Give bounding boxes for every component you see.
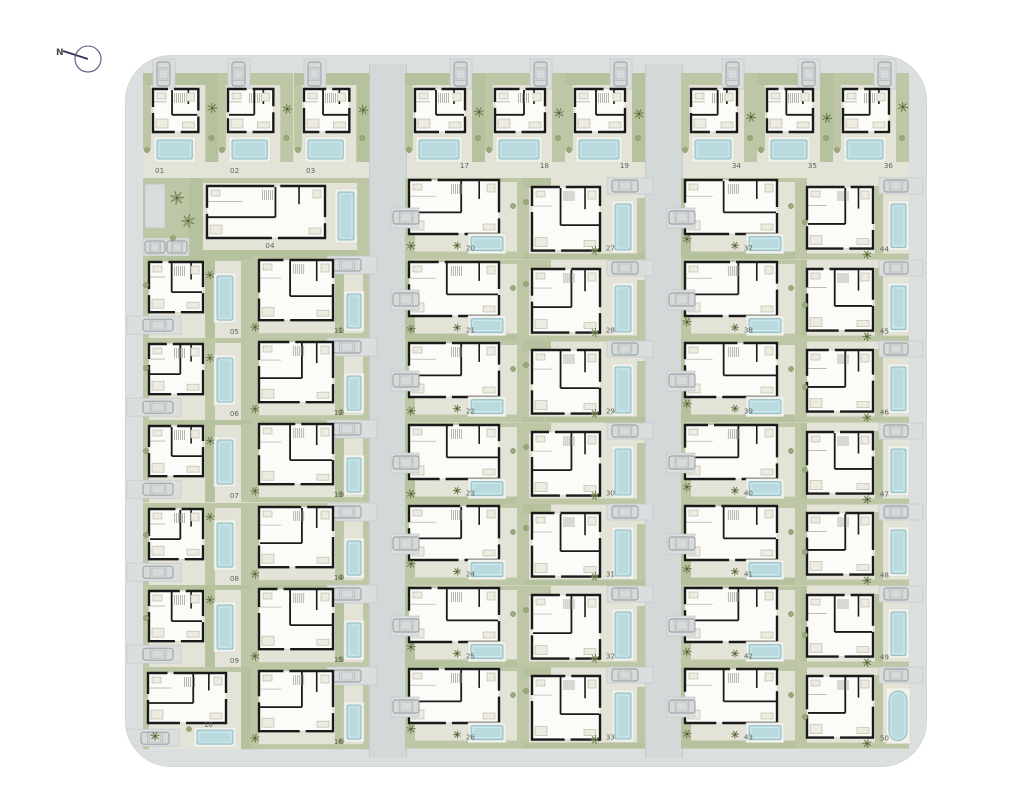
car-icon bbox=[612, 425, 638, 437]
garden-area bbox=[681, 73, 757, 85]
floor-plan bbox=[147, 672, 227, 724]
garden-area bbox=[357, 178, 369, 256]
garden-area bbox=[143, 338, 251, 343]
floor-plan bbox=[806, 594, 874, 658]
plot-number: 37 bbox=[744, 244, 753, 253]
plot-number: 08 bbox=[230, 574, 240, 583]
plot-36: 36 bbox=[833, 73, 909, 178]
tree-icon bbox=[731, 487, 739, 495]
site-plan-canvas: N 01020304050607080910111213141516171819… bbox=[0, 0, 1024, 800]
plot-02: 02 bbox=[218, 73, 293, 178]
plot-31: 31 bbox=[523, 504, 645, 586]
pool bbox=[844, 137, 886, 162]
plot-48: 48 bbox=[801, 504, 909, 586]
plot-number: 31 bbox=[606, 570, 615, 579]
garden-area bbox=[241, 507, 251, 585]
pool bbox=[335, 189, 357, 243]
floor-plan bbox=[531, 512, 601, 578]
pool bbox=[194, 727, 236, 747]
pool bbox=[612, 609, 634, 661]
north-label: N bbox=[56, 48, 64, 58]
floor-plan bbox=[258, 423, 334, 485]
garden-area bbox=[356, 85, 369, 162]
floor-plan bbox=[148, 508, 204, 560]
pool bbox=[416, 137, 462, 162]
car-icon bbox=[802, 62, 815, 86]
car-icon bbox=[726, 62, 739, 86]
floor-plan bbox=[684, 668, 778, 724]
floor-plan bbox=[806, 675, 874, 739]
plot-18: 18 bbox=[485, 73, 565, 178]
plot-number: 48 bbox=[880, 571, 890, 580]
pool bbox=[612, 283, 634, 335]
car-icon bbox=[878, 62, 891, 86]
car-icon bbox=[884, 262, 908, 274]
car-icon bbox=[669, 456, 695, 469]
bush-icon bbox=[566, 147, 571, 152]
floor-plan bbox=[806, 268, 874, 332]
bush-icon bbox=[788, 611, 793, 616]
bush-icon bbox=[523, 363, 528, 368]
garden-area bbox=[637, 361, 645, 417]
plot-number: 39 bbox=[744, 407, 754, 416]
plot-33: 33 bbox=[523, 667, 645, 749]
car-icon bbox=[612, 669, 638, 681]
bush-icon bbox=[788, 203, 793, 208]
garden-area bbox=[205, 85, 218, 162]
floor-plan bbox=[574, 88, 626, 133]
plot-08: 08 bbox=[143, 503, 251, 585]
garden-area bbox=[565, 85, 573, 150]
pool bbox=[496, 137, 542, 162]
plot-number: 41 bbox=[744, 570, 753, 579]
car-icon bbox=[612, 588, 638, 600]
floor-plan bbox=[842, 88, 890, 133]
bush-icon bbox=[802, 219, 807, 224]
pool bbox=[344, 455, 364, 495]
car-icon bbox=[143, 319, 173, 331]
garden-area bbox=[637, 687, 645, 743]
floor-plan bbox=[806, 349, 874, 413]
plot-number: 34 bbox=[732, 161, 742, 170]
plot-40: 40 bbox=[681, 423, 801, 505]
plot-27: 27 bbox=[523, 178, 645, 260]
plot-number: 17 bbox=[460, 161, 469, 170]
garden-area bbox=[485, 85, 493, 150]
floor-plan bbox=[531, 675, 601, 741]
bush-icon bbox=[510, 448, 515, 453]
car-icon bbox=[612, 262, 638, 274]
car-icon bbox=[393, 700, 419, 713]
floor-plan bbox=[408, 505, 500, 561]
car-icon bbox=[669, 700, 695, 713]
car-icon bbox=[333, 588, 361, 600]
tree-icon bbox=[453, 568, 461, 576]
floor-plan bbox=[684, 179, 778, 235]
garden-area bbox=[875, 675, 883, 743]
plot-26: 26 bbox=[405, 667, 523, 749]
plot-number: 24 bbox=[466, 570, 476, 579]
car-icon bbox=[232, 62, 245, 86]
pool bbox=[229, 137, 270, 162]
plot-number: 30 bbox=[606, 488, 616, 497]
floor-plan bbox=[148, 261, 204, 313]
bush-icon bbox=[899, 135, 904, 140]
plot-number: 36 bbox=[884, 161, 894, 170]
bush-icon bbox=[220, 147, 225, 152]
pool bbox=[612, 364, 634, 416]
floor-plan bbox=[408, 342, 500, 398]
plot-number: 16 bbox=[334, 737, 344, 746]
car-icon bbox=[393, 537, 419, 550]
garden-area bbox=[875, 594, 883, 662]
pool bbox=[576, 137, 622, 162]
plot-22: 22 bbox=[405, 341, 523, 423]
floor-plan bbox=[531, 268, 601, 334]
plot-number: 20 bbox=[466, 244, 476, 253]
plot-number: 21 bbox=[466, 325, 475, 334]
plot-30: 30 bbox=[523, 423, 645, 505]
car-icon bbox=[333, 670, 361, 682]
floor-plan bbox=[408, 261, 500, 317]
pool bbox=[888, 527, 909, 577]
plot-number: 49 bbox=[880, 652, 890, 661]
car-icon bbox=[884, 588, 908, 600]
plot-number: 28 bbox=[606, 325, 616, 334]
pool bbox=[888, 364, 909, 414]
plot-number: 10 bbox=[204, 720, 214, 729]
bush-icon bbox=[209, 135, 214, 140]
car-icon bbox=[884, 180, 908, 192]
plot-number: 38 bbox=[744, 325, 754, 334]
tree-icon bbox=[453, 323, 461, 331]
plot-number: 05 bbox=[230, 327, 239, 336]
plot-28: 28 bbox=[523, 260, 645, 342]
plot-34: 34 bbox=[681, 73, 757, 178]
plot-42: 42 bbox=[681, 586, 801, 668]
bush-icon bbox=[682, 147, 687, 152]
pool bbox=[344, 620, 364, 660]
pool bbox=[214, 437, 236, 487]
floor-plan bbox=[690, 88, 738, 133]
plot-15: 15 bbox=[251, 585, 369, 667]
garden-area bbox=[637, 443, 645, 499]
garden-area bbox=[241, 260, 251, 338]
floor-plan bbox=[806, 186, 874, 250]
pool bbox=[344, 702, 364, 742]
garden-area bbox=[143, 256, 251, 261]
floor-plan bbox=[148, 343, 204, 395]
pool bbox=[888, 446, 909, 496]
tree-icon bbox=[453, 731, 461, 739]
bush-icon bbox=[635, 135, 640, 140]
pool bbox=[344, 538, 364, 578]
plot-14: 14 bbox=[251, 503, 369, 585]
pool bbox=[214, 273, 236, 323]
car-icon bbox=[333, 506, 361, 518]
car-icon bbox=[669, 619, 695, 632]
plot-number: 40 bbox=[744, 488, 754, 497]
garden-area bbox=[218, 85, 226, 150]
pool bbox=[214, 520, 236, 570]
floor-plan bbox=[806, 431, 874, 495]
car-icon bbox=[669, 293, 695, 306]
bush-icon bbox=[284, 135, 289, 140]
pool bbox=[612, 446, 634, 498]
floor-plan bbox=[227, 88, 274, 133]
bush-icon bbox=[186, 726, 191, 731]
car-icon bbox=[167, 241, 187, 253]
north-arrow: N bbox=[36, 28, 116, 78]
bush-icon bbox=[788, 285, 793, 290]
tree-icon bbox=[453, 242, 461, 250]
plot-number: 04 bbox=[265, 241, 275, 250]
plot-number: 29 bbox=[606, 407, 616, 416]
pool bbox=[888, 609, 909, 659]
plot-45: 45 bbox=[801, 260, 909, 342]
car-icon bbox=[884, 669, 908, 681]
garden-area bbox=[523, 743, 645, 749]
floor-plan bbox=[766, 88, 814, 133]
plot-03: 03 bbox=[294, 73, 369, 178]
bush-icon bbox=[802, 467, 807, 472]
plot-20: 20 bbox=[405, 178, 523, 260]
garden-area bbox=[523, 586, 529, 668]
plot-44: 44 bbox=[801, 178, 909, 260]
plot-number: 47 bbox=[880, 489, 889, 498]
floor-plan bbox=[531, 186, 601, 252]
plot-number: 12 bbox=[334, 408, 343, 417]
pool bbox=[214, 602, 236, 652]
garden-area bbox=[757, 73, 833, 85]
garden-area bbox=[523, 341, 529, 423]
car-icon bbox=[669, 537, 695, 550]
bush-icon bbox=[295, 147, 300, 152]
pool bbox=[344, 373, 364, 413]
bush-icon bbox=[475, 135, 480, 140]
plots-layer: 0102030405060708091011121314151617181920… bbox=[126, 56, 926, 766]
car-icon bbox=[534, 62, 547, 86]
car-icon bbox=[612, 506, 638, 518]
floor-plan bbox=[531, 349, 601, 415]
bush-icon bbox=[143, 449, 148, 454]
bush-icon bbox=[758, 147, 763, 152]
bush-icon bbox=[143, 366, 148, 371]
car-icon bbox=[614, 62, 627, 86]
floor-plan bbox=[148, 425, 204, 477]
tree-icon bbox=[731, 650, 739, 658]
floor-plan bbox=[684, 342, 778, 398]
garden-area bbox=[205, 424, 215, 502]
bush-icon bbox=[144, 147, 149, 152]
car-icon bbox=[393, 293, 419, 306]
garden-area bbox=[241, 667, 251, 749]
floor-plan bbox=[408, 668, 500, 724]
bush-icon bbox=[510, 611, 515, 616]
plot-01: 01 bbox=[143, 73, 218, 178]
plot-10: 10 bbox=[143, 667, 251, 749]
plot-25: 25 bbox=[405, 586, 523, 668]
garden-area bbox=[205, 342, 215, 420]
car-icon bbox=[143, 483, 173, 495]
plot-number: 13 bbox=[334, 490, 343, 499]
car-icon bbox=[143, 566, 173, 578]
garden-area bbox=[565, 73, 645, 85]
development-site: 0102030405060708091011121314151617181920… bbox=[125, 55, 927, 767]
bush-icon bbox=[510, 693, 515, 698]
garden-area bbox=[896, 85, 909, 162]
pool bbox=[612, 527, 634, 579]
floor-plan bbox=[684, 505, 778, 561]
floor-plan bbox=[258, 670, 334, 732]
garden-area bbox=[143, 585, 251, 590]
garden-area bbox=[681, 85, 689, 150]
bush-icon bbox=[747, 135, 752, 140]
car-icon bbox=[612, 343, 638, 355]
garden-area bbox=[757, 85, 765, 150]
plot-09: 09 bbox=[143, 585, 251, 667]
floor-plan bbox=[206, 185, 326, 239]
floor-plan bbox=[414, 88, 466, 133]
floor-plan bbox=[806, 512, 874, 576]
pool bbox=[692, 137, 734, 162]
car-icon bbox=[333, 259, 361, 271]
garden-area bbox=[820, 85, 833, 162]
plot-number: 33 bbox=[606, 733, 615, 742]
garden-area bbox=[744, 85, 757, 162]
garden-area bbox=[203, 178, 369, 183]
plot-number: 43 bbox=[744, 733, 753, 742]
bush-icon bbox=[510, 367, 515, 372]
pool bbox=[344, 291, 364, 331]
bush-icon bbox=[802, 302, 807, 307]
tree-icon bbox=[453, 486, 461, 494]
car-icon bbox=[333, 341, 361, 353]
car-icon bbox=[333, 423, 361, 435]
plot-24: 24 bbox=[405, 504, 523, 586]
garden-area bbox=[143, 667, 251, 672]
plot-05: 05 bbox=[143, 256, 251, 338]
garden-area bbox=[552, 85, 565, 162]
plot-39: 39 bbox=[681, 341, 801, 423]
garden-area bbox=[632, 85, 645, 162]
pool bbox=[612, 690, 634, 742]
bush-icon bbox=[788, 530, 793, 535]
bush-icon bbox=[406, 147, 411, 152]
bush-icon bbox=[555, 135, 560, 140]
tree-icon bbox=[731, 731, 739, 739]
plot-11: 11 bbox=[251, 256, 369, 338]
plot-number: 02 bbox=[230, 166, 239, 175]
plot-23: 23 bbox=[405, 423, 523, 505]
floor-plan bbox=[258, 259, 334, 321]
floor-plan bbox=[408, 424, 500, 480]
plot-number: 03 bbox=[306, 166, 315, 175]
floor-plan bbox=[258, 341, 334, 403]
plot-number: 26 bbox=[466, 733, 476, 742]
plot-number: 22 bbox=[466, 407, 475, 416]
pool bbox=[888, 201, 909, 251]
garden-area bbox=[833, 73, 909, 85]
car-icon bbox=[454, 62, 467, 86]
floor-plan bbox=[684, 261, 778, 317]
plot-17: 17 bbox=[405, 73, 485, 178]
bush-icon bbox=[510, 530, 515, 535]
garden-area bbox=[637, 606, 645, 662]
floor-plan bbox=[258, 588, 334, 650]
plot-number: 19 bbox=[620, 161, 630, 170]
floor-plan bbox=[684, 424, 778, 480]
plot-number: 09 bbox=[230, 656, 240, 665]
car-icon bbox=[612, 180, 638, 192]
pool bbox=[214, 355, 236, 405]
plot-number: 32 bbox=[606, 651, 615, 660]
tree-icon bbox=[731, 323, 739, 331]
garden-area bbox=[523, 423, 529, 505]
garden-area bbox=[875, 268, 883, 336]
bush-icon bbox=[788, 367, 793, 372]
floor-plan bbox=[152, 88, 199, 133]
plot-number: 07 bbox=[230, 491, 239, 500]
plot-number: 45 bbox=[880, 326, 889, 335]
garden-area bbox=[523, 504, 529, 586]
car-icon bbox=[393, 374, 419, 387]
car-icon bbox=[393, 211, 419, 224]
floor-plan bbox=[408, 587, 500, 643]
garden-area bbox=[251, 744, 369, 749]
bush-icon bbox=[510, 203, 515, 208]
garden-area bbox=[523, 667, 529, 749]
garden-area bbox=[241, 589, 251, 667]
garden-area bbox=[143, 503, 251, 508]
bush-icon bbox=[523, 199, 528, 204]
plot-19: 19 bbox=[565, 73, 645, 178]
garden-area bbox=[523, 260, 529, 342]
plot-06: 06 bbox=[143, 338, 251, 420]
pool bbox=[886, 688, 910, 744]
bush-icon bbox=[802, 385, 807, 390]
bush-icon bbox=[170, 235, 175, 240]
bush-icon bbox=[802, 632, 807, 637]
plot-number: 27 bbox=[606, 244, 615, 253]
bush-icon bbox=[523, 526, 528, 531]
bush-icon bbox=[143, 615, 148, 620]
garden-area bbox=[523, 178, 529, 260]
plot-number: 11 bbox=[334, 326, 343, 335]
plot-49: 49 bbox=[801, 586, 909, 668]
floor-plan bbox=[408, 179, 500, 235]
floor-plan bbox=[684, 587, 778, 643]
bush-icon bbox=[802, 550, 807, 555]
plot-number: 44 bbox=[880, 245, 890, 254]
plot-number: 18 bbox=[540, 161, 550, 170]
plot-04: 04 bbox=[143, 178, 369, 256]
bush-icon bbox=[359, 135, 364, 140]
plot-41: 41 bbox=[681, 504, 801, 586]
car-icon bbox=[143, 401, 173, 413]
bush-icon bbox=[788, 693, 793, 698]
garden-area bbox=[485, 73, 565, 85]
pool bbox=[888, 283, 909, 333]
bush-icon bbox=[802, 715, 807, 720]
floor-plan bbox=[531, 594, 601, 660]
garden-area bbox=[189, 178, 203, 256]
plot-46: 46 bbox=[801, 341, 909, 423]
plot-12: 12 bbox=[251, 338, 369, 420]
bush-icon bbox=[823, 135, 828, 140]
plot-35: 35 bbox=[757, 73, 833, 178]
car-icon bbox=[884, 343, 908, 355]
